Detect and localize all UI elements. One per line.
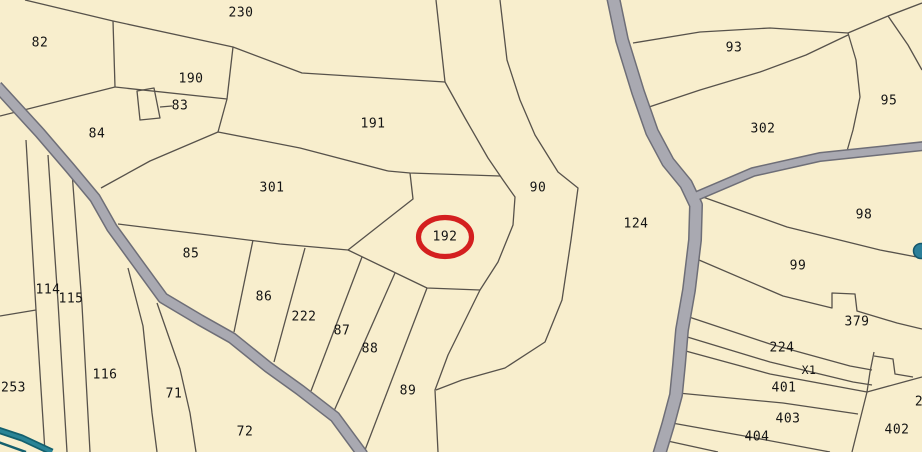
parcel-label-X1: X1	[802, 363, 817, 377]
parcel-label-230: 230	[229, 6, 254, 21]
parcel-label-253: 253	[1, 381, 26, 396]
parcel-label-114: 114	[36, 283, 61, 298]
parcel-label-86: 86	[256, 290, 273, 305]
parcel-label-379: 379	[845, 315, 870, 330]
parcel-label-99: 99	[790, 259, 807, 274]
parcel-label-95: 95	[881, 94, 898, 109]
parcel-label-93: 93	[726, 41, 743, 56]
parcel-label-301: 301	[260, 181, 285, 196]
parcel-label-302: 302	[751, 122, 776, 137]
parcel-label-222: 222	[292, 310, 317, 325]
parcel-label-84: 84	[89, 127, 106, 142]
parcel-label-71: 71	[166, 387, 183, 402]
parcel-label-191: 191	[361, 117, 386, 132]
parcel-label-124: 124	[624, 217, 649, 232]
parcel-label-98: 98	[856, 208, 873, 223]
parcel-label-90: 90	[530, 181, 547, 196]
parcel-label-224: 224	[770, 341, 795, 356]
parcel-label-82: 82	[32, 36, 49, 51]
parcel-label-190: 190	[179, 72, 204, 87]
parcel-label-72: 72	[237, 425, 254, 440]
map-canvas[interactable]: 2308219083841919330295301901921249899851…	[0, 0, 922, 452]
parcel-label-402: 402	[885, 423, 910, 438]
parcel-label-88: 88	[362, 342, 379, 357]
parcel-label-192: 192	[433, 230, 458, 245]
parcel-label-85: 85	[183, 247, 200, 262]
parcel-label-115: 115	[59, 292, 84, 307]
cadastral-map: 2308219083841919330295301901921249899851…	[0, 0, 922, 452]
parcel-label-83: 83	[172, 99, 189, 114]
parcel-label-401: 401	[772, 381, 797, 396]
parcel-label-403: 403	[776, 412, 801, 427]
parcel-label-404: 404	[745, 430, 770, 445]
parcel-label-89: 89	[400, 384, 417, 399]
parcel-label-87: 87	[334, 324, 351, 339]
parcel-label-2: 2	[915, 395, 922, 410]
well-point	[914, 244, 922, 259]
parcel-label-116: 116	[93, 368, 118, 383]
